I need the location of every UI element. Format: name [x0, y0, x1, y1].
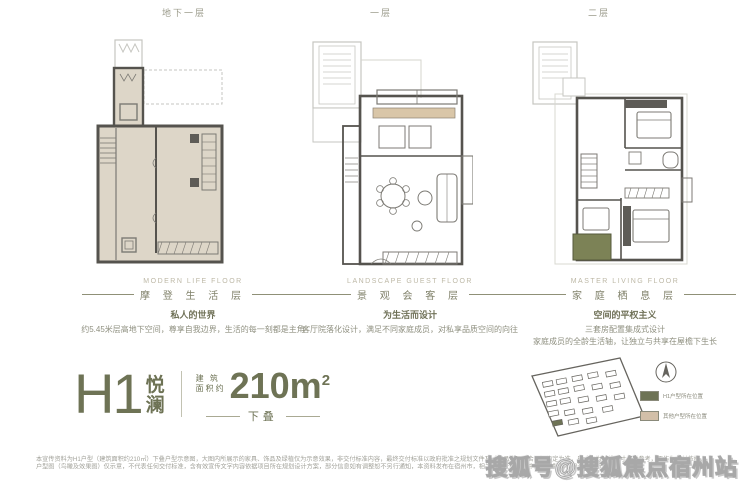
caption-rule-left	[299, 294, 351, 295]
caption-second-cn: 家 庭 栖 息 层	[566, 287, 684, 302]
area-value: 210m2	[230, 363, 330, 404]
siteplan-legend: H1户型所在位置 其他户型所在位置	[640, 388, 740, 428]
caption-basement-cn: 摩 登 生 活 层	[134, 287, 252, 302]
floor-label-second: 二层	[588, 6, 610, 19]
area-prefix: 建 筑 面积约	[196, 374, 226, 394]
caption-first: LANDSCAPE GUEST FLOOR 景 观 会 客 层 为生活而设计 客…	[295, 278, 525, 335]
area-prefix-line2: 面积约	[196, 384, 226, 394]
unit-title-block: H1 悦 澜 建 筑 面积约 210m2 下叠	[74, 363, 330, 424]
caption-second-en: MASTER LIVING FLOOR	[510, 278, 740, 286]
caption-basement-desc: 约5.45米层高地下空间，尊享自我边界，生活的每一刻都是主角	[78, 325, 308, 335]
legend-label-other-units: 其他户型所在位置	[663, 411, 707, 419]
unit-tag: 下叠	[240, 408, 286, 424]
caption-first-en: LANDSCAPE GUEST FLOOR	[295, 278, 525, 286]
first-floorplan	[305, 38, 473, 278]
caption-basement-headline: 私人的世界	[78, 308, 308, 321]
caption-second-desc-1: 三套房配置集成式设计	[510, 325, 740, 335]
unit-name-char2: 澜	[146, 396, 165, 416]
floor-label-basement: 地下一层	[162, 6, 206, 19]
caption-second-headline: 空间的平权主义	[510, 308, 740, 321]
second-floorplan-drawing	[525, 38, 693, 273]
floorplan-sheet: 地下一层 一层 二层	[0, 0, 740, 485]
unit-name: 悦 澜	[146, 376, 165, 416]
caption-rule-left	[82, 294, 134, 295]
legend-label-this-unit: H1户型所在位置	[663, 391, 703, 399]
second-floorplan	[525, 38, 693, 278]
caption-basement-en: MODERN LIFE FLOOR	[78, 278, 308, 286]
caption-second-desc-2: 家庭成员的全龄生活轴，让独立与共享在屋檐下生长	[510, 337, 740, 347]
area-prefix-line1: 建 筑	[196, 374, 226, 384]
tag-rule-left	[206, 416, 240, 417]
floor-label-first: 一层	[370, 6, 392, 19]
caption-second: MASTER LIVING FLOOR 家 庭 栖 息 层 空间的平权主义 三套…	[510, 278, 740, 347]
unit-code: H1	[74, 366, 142, 422]
area-block: 建 筑 面积约 210m2 下叠	[196, 363, 330, 424]
unit-tag-row: 下叠	[196, 408, 330, 424]
basement-floorplan-drawing	[94, 38, 226, 268]
legend-row-other-units: 其他户型所在位置	[640, 408, 740, 423]
unit-name-char1: 悦	[146, 376, 165, 396]
legend-row-this-unit: H1户型所在位置	[640, 388, 740, 403]
caption-rule-right	[684, 294, 736, 295]
caption-rule-left	[514, 294, 566, 295]
area-superscript: 2	[322, 372, 330, 389]
caption-first-desc: 客厅院落化设计，满足不同家庭成员，对私享品质空间的向往	[295, 325, 525, 335]
caption-first-headline: 为生活而设计	[295, 308, 525, 321]
tag-rule-right	[286, 416, 320, 417]
title-divider	[181, 371, 182, 417]
first-floorplan-drawing	[305, 38, 473, 273]
caption-basement: MODERN LIFE FLOOR 摩 登 生 活 层 私人的世界 约5.45米…	[78, 278, 308, 335]
basement-floorplan	[94, 38, 226, 273]
caption-first-cn: 景 观 会 客 层	[351, 287, 469, 302]
compass-needle	[662, 363, 670, 378]
watermark: 搜狐号@搜狐焦点宿州站	[486, 450, 738, 482]
legend-swatch-this-unit	[640, 391, 659, 401]
legend-swatch-other-units	[640, 411, 659, 421]
